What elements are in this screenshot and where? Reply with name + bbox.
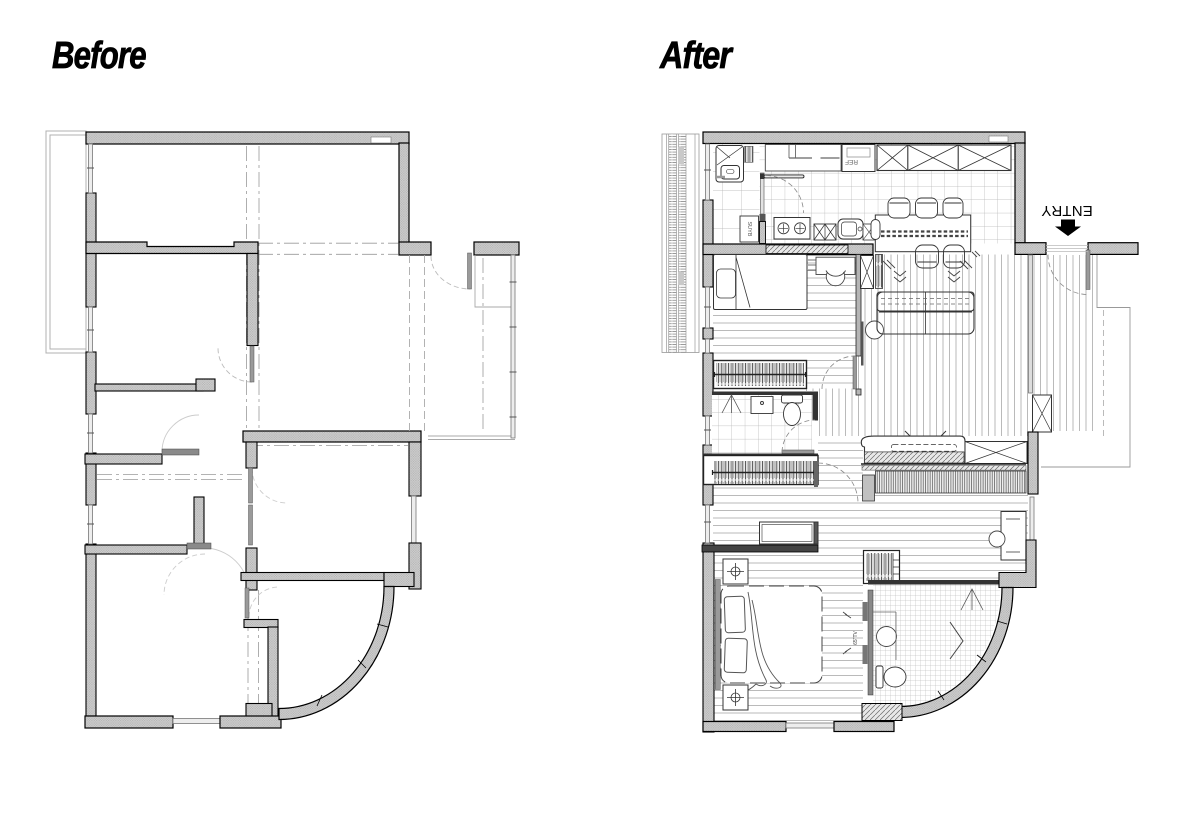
svg-text:SUYB: SUYB	[746, 222, 752, 237]
svg-text:ENTRY: ENTRY	[1041, 202, 1093, 219]
svg-text:65"TV: 65"TV	[853, 630, 859, 644]
svg-text:Before: Before	[52, 35, 146, 77]
svg-text:REF: REF	[845, 158, 858, 165]
svg-text:After: After	[659, 35, 734, 77]
